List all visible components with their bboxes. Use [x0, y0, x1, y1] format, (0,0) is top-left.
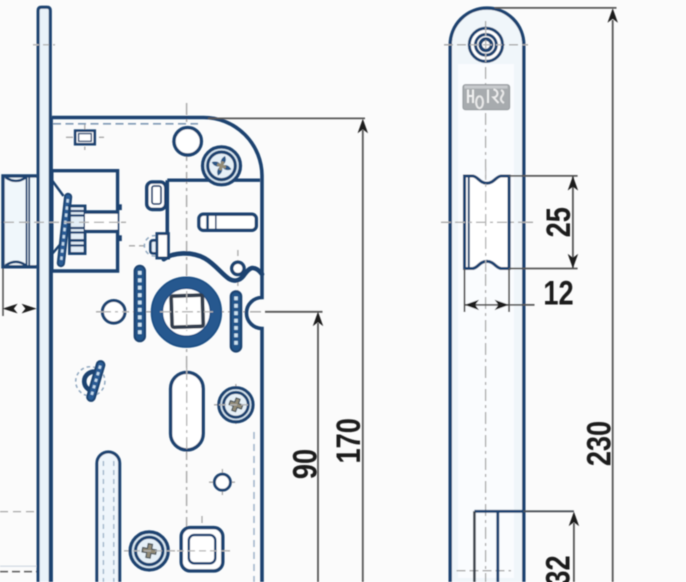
svg-text:230: 230: [580, 421, 619, 466]
svg-text:25: 25: [539, 207, 578, 237]
svg-text:32: 32: [539, 555, 578, 582]
svg-text:90: 90: [285, 449, 324, 479]
svg-text:170: 170: [329, 418, 368, 463]
svg-text:12: 12: [543, 274, 573, 313]
